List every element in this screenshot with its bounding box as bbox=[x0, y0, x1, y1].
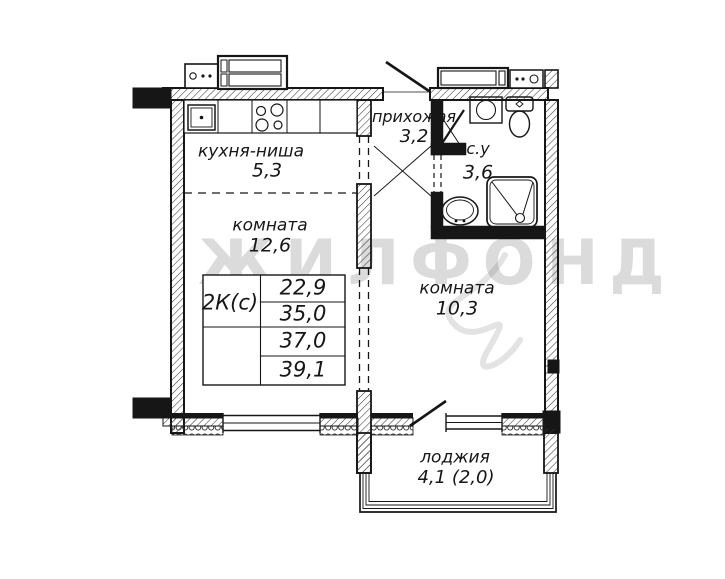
room-area-loggia: 4,1 (2,0) bbox=[417, 469, 494, 487]
table-value-4: 39,1 bbox=[280, 360, 327, 381]
table-value-1: 22,9 bbox=[280, 278, 327, 299]
floor-plan-page: ЖИЛФОНД bbox=[0, 0, 725, 579]
room-area-room-1: 12,6 bbox=[249, 237, 291, 256]
apartment-type-label: 2К(с) bbox=[202, 293, 258, 314]
table-value-2: 35,0 bbox=[280, 304, 327, 325]
room-area-bathroom: 3,6 bbox=[463, 164, 493, 183]
room-label-loggia: лоджия bbox=[420, 450, 490, 467]
room-label-room-2: комната bbox=[419, 281, 494, 298]
room-label-bathroom: с.у bbox=[466, 141, 489, 157]
room-label-hallway: прихожая bbox=[372, 109, 456, 125]
room-label-room-1: комната bbox=[232, 218, 307, 235]
room-area-hallway: 3,2 bbox=[400, 128, 429, 146]
room-label-kitchen-niche: кухня-ниша bbox=[198, 144, 304, 161]
room-area-kitchen-niche: 5,3 bbox=[252, 162, 282, 181]
room-labels: кухня-ниша 5,3 комната 12,6 прихожая 3,2… bbox=[0, 0, 725, 579]
table-value-3: 37,0 bbox=[280, 331, 327, 352]
room-area-room-2: 10,3 bbox=[436, 300, 478, 319]
